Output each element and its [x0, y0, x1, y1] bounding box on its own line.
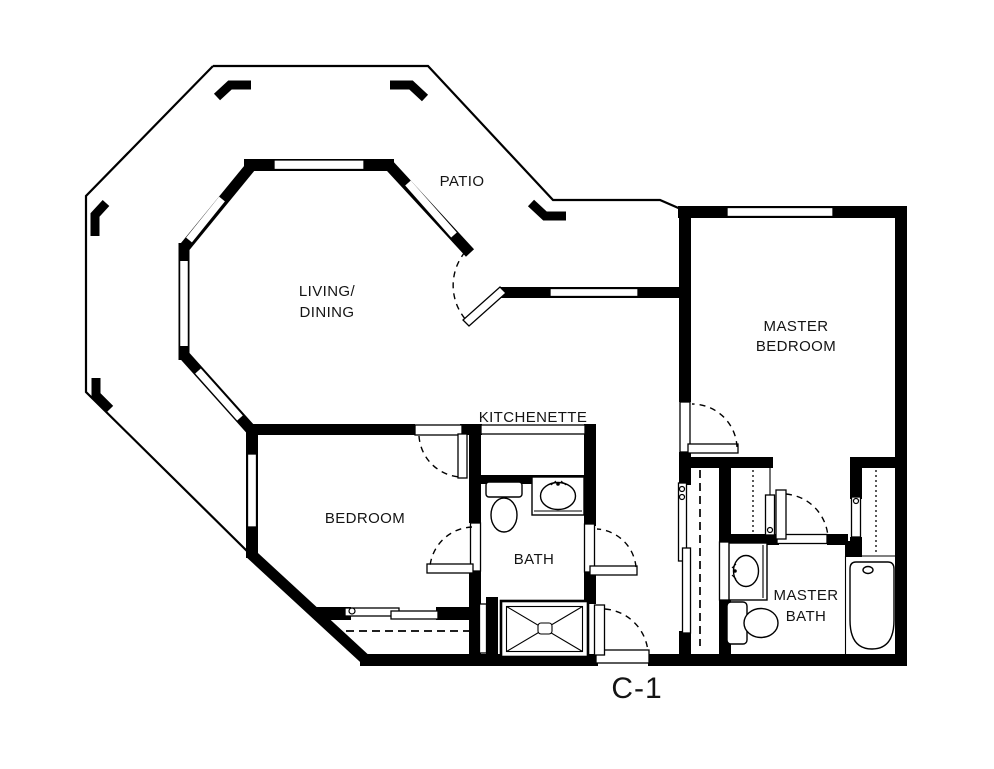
master-toilet-bowl	[744, 609, 778, 638]
label-kitchenette: KITCHENETTE	[479, 409, 588, 426]
bath-jamb-panel	[480, 604, 487, 653]
wall-south-east-run	[648, 654, 907, 666]
master-closet-east-knob	[854, 499, 859, 504]
master-bath-door-leaf	[776, 490, 786, 539]
wall-hall-east-upper	[679, 452, 691, 485]
bedroom-bath-door-leaf	[427, 564, 473, 573]
master-sink-faucet-dot	[733, 569, 737, 573]
entry-door-leaf	[595, 605, 605, 655]
bath-hall-door	[585, 524, 638, 575]
master-bath-door	[776, 490, 828, 544]
windows	[184, 160, 833, 527]
wall-east-closet-west-upper	[850, 457, 862, 499]
label-master-bath-line1: MASTER	[774, 587, 839, 604]
kitchenette-counter	[481, 425, 585, 434]
patio-railing-left	[86, 66, 250, 554]
window-living-nw	[189, 199, 222, 240]
sink-faucet-dot	[556, 482, 560, 486]
wall-shower-column	[486, 597, 498, 656]
label-living-line2: DINING	[300, 304, 355, 321]
shower-drain	[538, 623, 552, 634]
bathtub-drain	[863, 567, 873, 574]
floor-plan-drawing: PATIO LIVING/ DINING MASTER BEDROOM BEDR…	[0, 0, 994, 769]
patio-corner-mark-left-upper	[95, 203, 106, 236]
label-unit: C-1	[611, 672, 662, 705]
patio-door-swing	[453, 252, 466, 320]
window-bedroom-west	[248, 454, 257, 527]
master-bedroom-door-swing	[692, 404, 737, 447]
bath-hall-door-swing	[597, 529, 636, 567]
bedroom-door-leaf	[458, 434, 467, 478]
hall-closet-bypass-door-2	[683, 548, 691, 633]
bedroom-closet-knob	[349, 608, 355, 614]
hall-closet-knob-1	[680, 487, 685, 492]
bedroom-closet-door-2	[391, 611, 438, 619]
wall-master-bedroom-west	[679, 212, 691, 402]
entry-door-swing	[605, 609, 648, 652]
master-bedroom-door	[680, 402, 738, 453]
floor-plan-page: PATIO LIVING/ DINING MASTER BEDROOM BEDR…	[0, 0, 994, 769]
bedroom-door-frame	[415, 425, 462, 435]
shower-stall	[501, 601, 588, 657]
label-bedroom: BEDROOM	[325, 510, 405, 527]
patio-door	[453, 252, 506, 326]
patio-corner-mark-top-right	[390, 85, 425, 98]
window-living-ne	[408, 183, 454, 235]
patio-corner-mark-inner	[531, 203, 566, 216]
window-living-north	[274, 160, 364, 170]
bedroom-bath-door	[427, 523, 481, 573]
hall-closet	[679, 470, 701, 646]
toilet-bowl	[491, 498, 517, 532]
master-closet-west	[753, 468, 775, 535]
window-living-sw	[198, 371, 240, 418]
master-closet-west-knob	[768, 528, 773, 533]
wall-bath-east-lower	[584, 571, 596, 604]
wall-bedroom-north	[246, 424, 415, 435]
patio-door-leaf	[463, 287, 506, 326]
window-master-bedroom	[727, 208, 833, 217]
wall-hall-closet-east	[719, 457, 731, 542]
wall-master-bath-north-stub	[827, 534, 848, 545]
bedroom-door-swing	[419, 436, 460, 477]
bedroom-bath-door-swing	[430, 527, 472, 566]
label-patio: PATIO	[440, 173, 485, 190]
master-sink-basin	[734, 556, 759, 587]
bedroom-door	[415, 425, 467, 478]
sink-basin	[541, 483, 576, 510]
label-master-bath-line2: BATH	[786, 608, 827, 625]
wall-east-closet-west-lower	[850, 537, 862, 557]
label-master-bedroom-line2: BEDROOM	[756, 338, 836, 355]
hall-closet-knob-2	[680, 495, 685, 500]
bedroom-closet	[315, 607, 474, 631]
bedroom-closet-stub-right	[436, 607, 474, 620]
wall-hall-east-lower	[679, 631, 691, 656]
window-living-south	[550, 289, 638, 297]
bath-hall-door-leaf	[590, 566, 637, 575]
label-bath: BATH	[514, 551, 555, 568]
entry-door	[595, 605, 650, 663]
label-living-line1: LIVING/	[299, 283, 356, 300]
wall-east-exterior	[895, 206, 907, 666]
bath-hall-door-frame	[585, 524, 595, 572]
toilet-tank	[486, 482, 522, 497]
patio-corner-mark-top-left	[217, 85, 251, 97]
label-master-bedroom-line1: MASTER	[764, 318, 829, 335]
master-bedroom-door-leaf	[688, 444, 738, 453]
bathtub	[850, 562, 894, 649]
wall-bedroom-east-upper	[469, 424, 481, 523]
master-bath-door-swing	[786, 494, 828, 538]
